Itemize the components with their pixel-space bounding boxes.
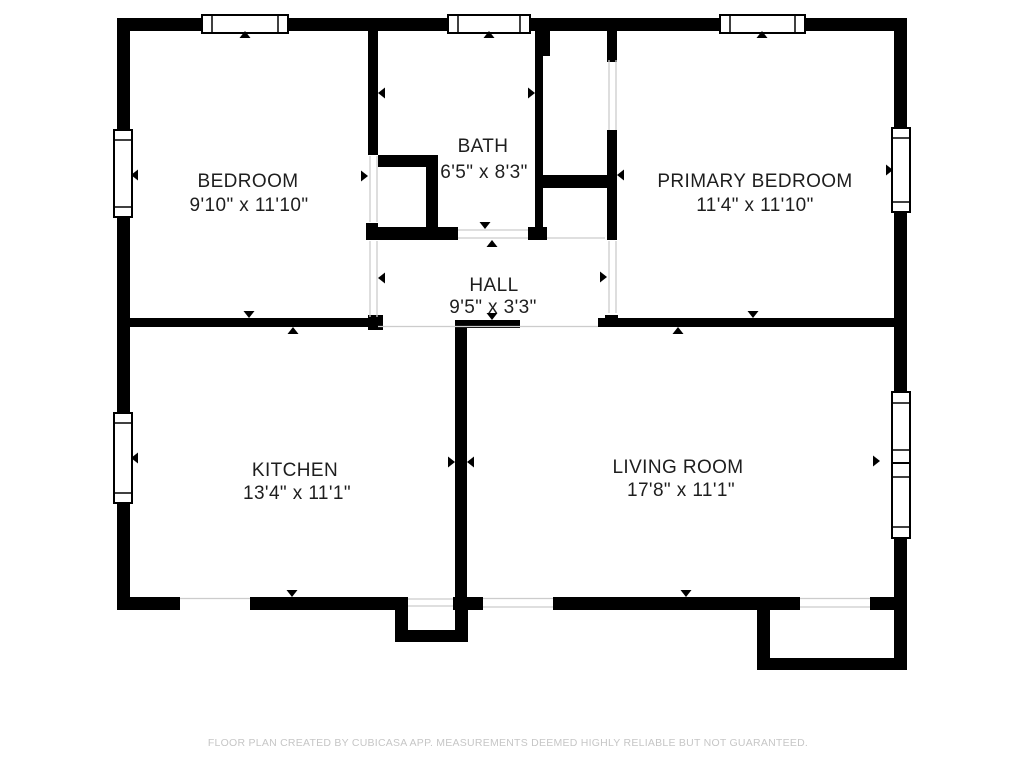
primary-left-wall-top [607,30,617,62]
arrow-left-icon [378,273,385,284]
kitchen-top-wall-cap [368,315,383,330]
bath-bottom-wall [368,227,458,240]
window-kitchen-left [114,413,132,503]
arrow-right-icon [448,457,455,468]
arrow-right-icon [361,171,368,182]
room-dims-bath: 6'5" x 8'3" [440,162,527,183]
door-openings [180,60,870,607]
arrow-right-icon [528,88,535,99]
room-dims-bedroom: 9'10" x 11'10" [190,195,309,216]
arrow-down-icon [748,311,759,318]
kitchen-top-wall [130,318,383,327]
window-bath-top [448,15,530,33]
stoop-bottom-wall [395,630,468,642]
room-label-bedroom: BEDROOM [198,171,299,192]
room-dims-kitchen: 13'4" x 11'1" [243,483,351,504]
room-label-living-room: LIVING ROOM [612,457,743,478]
room-dims-hall: 9'5" x 3'3" [449,297,536,318]
room-label-bath: BATH [458,136,509,157]
window-primary-right [892,128,910,212]
bottom-wall-kitchen-left [117,597,180,610]
page: { "plan": { "rooms": [ { "id": "bedroom"… [0,0,1024,768]
room-dims-living-room: 17'8" x 11'1" [627,480,735,501]
bottom-wall-kitchen-right [250,597,408,610]
bath-right-wall-top-flare [535,30,550,56]
arrow-down-icon [480,222,491,229]
arrow-left-icon [617,170,624,181]
room-dims-primary-bedroom: 11'4" x 11'10" [696,195,814,216]
window-bedroom-top [202,15,288,33]
arrow-right-icon [600,272,607,283]
footer-disclaimer: FLOOR PLAN CREATED BY CUBICASA APP. MEAS… [208,737,808,749]
window-living-right-upper [892,392,910,463]
kitchen-living-wall [455,320,467,610]
arrow-down-icon [287,590,298,597]
room-label-kitchen: KITCHEN [252,460,338,481]
closet-divider-wall [543,175,617,188]
walls [117,18,907,670]
window-bedroom-left [114,130,132,217]
room-label-primary-bedroom: PRIMARY BEDROOM [657,171,852,192]
bottom-wall-right-corner [870,597,894,610]
primary-left-wall-mid [607,130,617,240]
left-wall [117,18,130,610]
arrow-right-icon [873,456,880,467]
arrow-up-icon [487,240,498,247]
porch-bottom-wall [757,658,907,670]
arrow-down-icon [244,311,255,318]
room-label-hall: HALL [469,275,518,296]
bath-right-wall [535,30,543,240]
window-primary-top [720,15,805,33]
arrow-up-icon [673,327,684,334]
arrow-down-icon [681,590,692,597]
living-top-wall [598,318,894,327]
bedroom-bath-wall [368,31,378,155]
window-living-right-lower [892,463,910,538]
right-wall [894,18,907,670]
bath-right-wall-bottom-flare [528,227,547,240]
floor-plan-canvas: BEDROOM 9'10" x 11'10" BATH 6'5" x 8'3" … [0,0,1024,768]
arrow-left-icon [467,457,474,468]
arrow-left-icon [378,88,385,99]
arrow-up-icon [288,327,299,334]
